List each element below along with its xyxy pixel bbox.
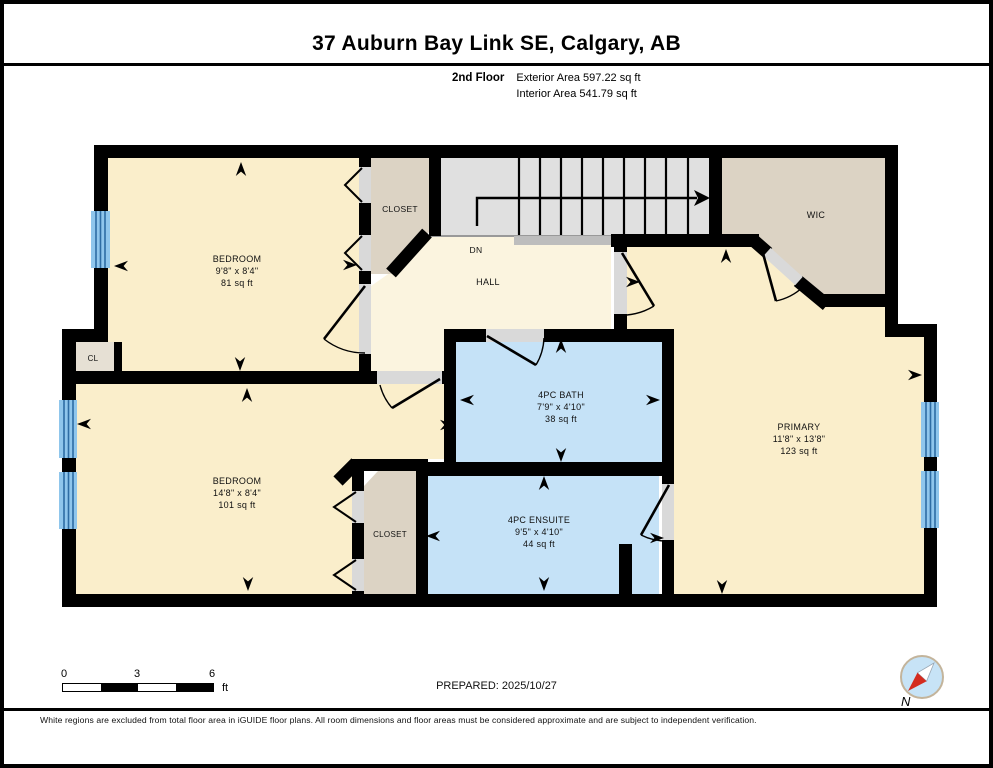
svg-text:11'8" x 13'8": 11'8" x 13'8" xyxy=(773,434,826,444)
label-primary: PRIMARY 11'8" x 13'8" 123 sq ft xyxy=(773,422,826,456)
svg-text:PRIMARY: PRIMARY xyxy=(778,422,821,432)
svg-text:9'5" x 4'10": 9'5" x 4'10" xyxy=(515,527,563,537)
svg-text:38 sq ft: 38 sq ft xyxy=(545,414,577,424)
compass-north-label: N xyxy=(901,694,911,709)
svg-text:44 sq ft: 44 sq ft xyxy=(523,539,555,549)
svg-text:4PC ENSUITE: 4PC ENSUITE xyxy=(508,515,570,525)
floor-plan-page: 37 Auburn Bay Link SE, Calgary, AB 2nd F… xyxy=(0,0,993,768)
label-bedroom-2: BEDROOM 14'8" x 8'4" 101 sq ft xyxy=(213,476,262,510)
disclaimer-text: White regions are excluded from total fl… xyxy=(40,715,969,725)
svg-text:123 sq ft: 123 sq ft xyxy=(780,446,817,456)
label-hall: HALL xyxy=(476,277,500,287)
window-primary-right-1 xyxy=(921,402,939,457)
label-closet-2: CLOSET xyxy=(373,530,407,539)
svg-text:81 sq ft: 81 sq ft xyxy=(221,278,253,288)
svg-text:9'8" x 8'4": 9'8" x 8'4" xyxy=(216,266,259,276)
svg-text:101 sq ft: 101 sq ft xyxy=(218,500,255,510)
floor-plan-drawing: BEDROOM 9'8" x 8'4" 81 sq ft CLOSET DN H… xyxy=(4,4,993,768)
label-wic: WIC xyxy=(807,210,826,220)
footer-divider xyxy=(4,708,989,711)
label-cl: CL xyxy=(88,354,99,363)
scale-tick-6: 6 xyxy=(209,668,215,680)
window-bedroom1-left xyxy=(91,211,110,268)
label-stairs-dn: DN xyxy=(470,245,483,255)
window-bedroom2-left-2 xyxy=(59,472,77,529)
svg-text:BEDROOM: BEDROOM xyxy=(213,476,262,486)
label-closet-1: CLOSET xyxy=(382,204,418,214)
scale-tick-0: 0 xyxy=(61,668,67,680)
room-bedroom-1 xyxy=(108,158,359,371)
stair-landing-strip xyxy=(514,236,611,245)
compass-icon: N xyxy=(892,650,952,712)
scale-tick-3: 3 xyxy=(134,668,140,680)
svg-text:14'8" x 8'4": 14'8" x 8'4" xyxy=(213,488,261,498)
svg-text:BEDROOM: BEDROOM xyxy=(213,254,262,264)
prepared-date: PREPARED: 2025/10/27 xyxy=(4,680,989,692)
window-primary-right-2 xyxy=(921,471,939,528)
svg-text:7'9" x 4'10": 7'9" x 4'10" xyxy=(537,402,585,412)
window-bedroom2-left-1 xyxy=(59,400,77,458)
svg-text:4PC BATH: 4PC BATH xyxy=(538,390,584,400)
